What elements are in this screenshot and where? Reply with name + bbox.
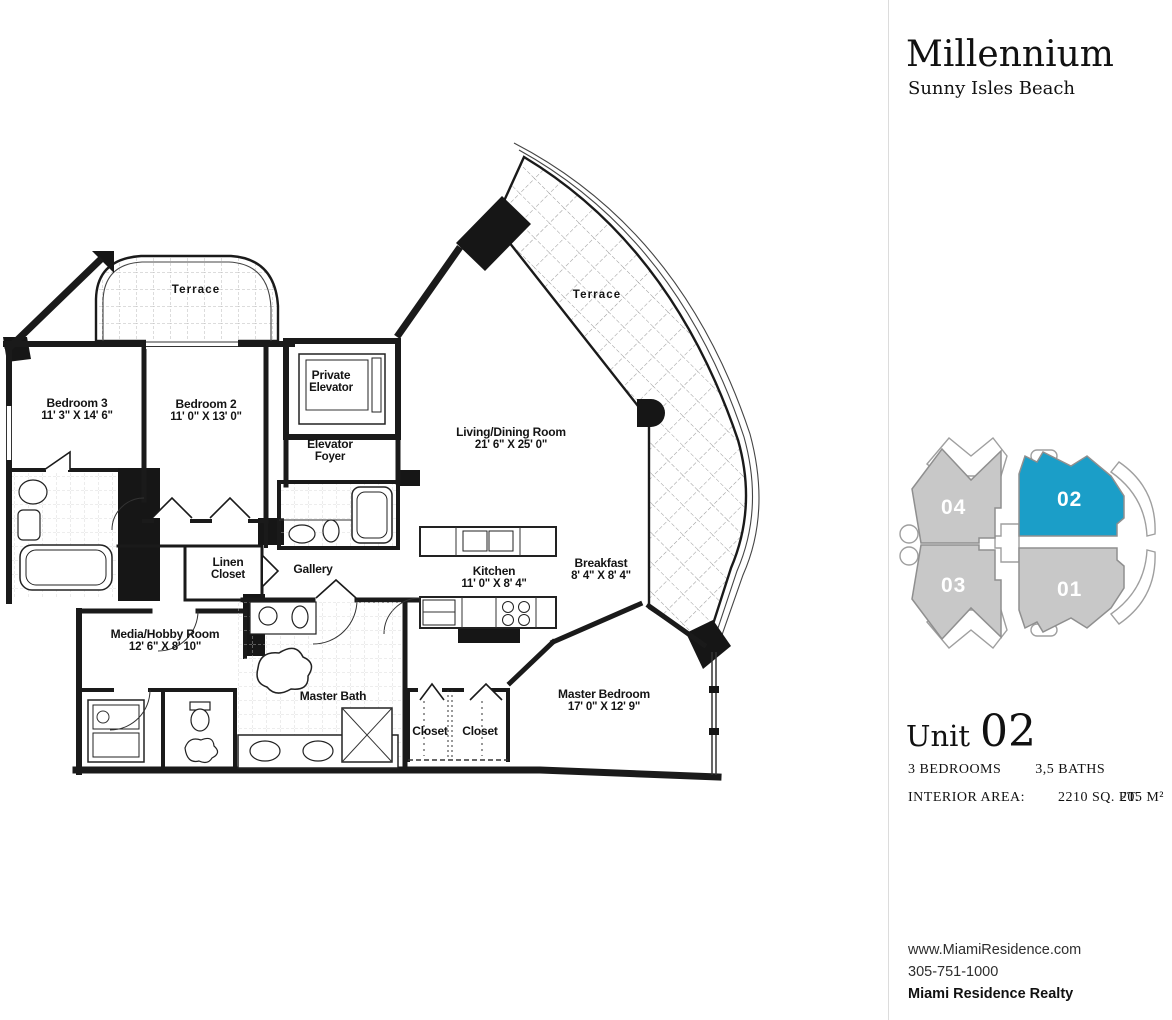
room-label-kitchen: Kitchen11' 0" X 8' 4" (461, 564, 526, 592)
unit-title: Unit 02 (906, 706, 1036, 757)
unit-word: Unit (906, 719, 970, 753)
room-label-master-bath: Master Bath (300, 689, 366, 703)
laundry-shape (88, 690, 150, 762)
keyplan-label-02: 02 (1057, 488, 1082, 511)
building-location: Sunny Isles Beach (908, 78, 1114, 100)
info-panel: Millennium Sunny Isles Beach 04 (888, 0, 1172, 1020)
keyplan-label-03: 03 (941, 574, 966, 597)
terrace-north-shape (96, 256, 278, 341)
keyplan: 04 02 03 01 (897, 436, 1167, 658)
bedrooms-value: 3 BEDROOMS (908, 762, 1001, 777)
room-label-elevator-foyer: ElevatorFoyer (307, 437, 353, 465)
unit-number: 02 (980, 706, 1036, 757)
hall-bath-shape (279, 482, 398, 548)
room-label-master-bedroom: Master Bedroom17' 0" X 12' 9" (558, 687, 650, 715)
bath-2-shape (12, 452, 116, 598)
baths-value: 3,5 BATHS (1035, 762, 1105, 777)
room-label-breakfast: Breakfast8' 4" X 8' 4" (571, 556, 631, 584)
room-label-bedroom-3: Bedroom 311' 3" X 14' 6" (41, 396, 113, 424)
unit-specs: 3 BEDROOMS 3,5 BATHS INTERIOR AREA: 2210… (908, 763, 1164, 807)
floorplan-drawing (0, 0, 890, 1020)
keyplan-label-01: 01 (1057, 578, 1082, 601)
powder-room-shape (185, 702, 218, 762)
area-label: INTERIOR AREA: (908, 790, 1025, 805)
area-m2: 205 M² (1120, 791, 1164, 805)
room-label-closet-right: Closet (462, 724, 497, 738)
flyer-page: TerraceTerraceBedroom 311' 3" X 14' 6"Be… (0, 0, 1172, 1020)
area-row: INTERIOR AREA: 2210 SQ. FT. 205 M² (908, 791, 1164, 807)
room-label-living-dining: Living/Dining Room21' 6" X 25' 0" (456, 425, 566, 453)
room-label-terrace-east: Terrace (573, 289, 621, 303)
floorplan: TerraceTerraceBedroom 311' 3" X 14' 6"Be… (0, 0, 890, 1020)
room-label-gallery: Gallery (293, 562, 332, 576)
phone: 305-751-1000 (908, 962, 1081, 984)
room-label-terrace-north: Terrace (172, 284, 220, 298)
brand-block: Millennium Sunny Isles Beach (906, 36, 1114, 99)
room-label-closet-left: Closet (412, 724, 447, 738)
contact-block: www.MiamiResidence.com 305-751-1000 Miam… (908, 940, 1081, 1005)
keyplan-label-04: 04 (941, 496, 966, 519)
room-label-linen-closet: LinenCloset (211, 555, 245, 583)
company-name: Miami Residence Realty (908, 984, 1081, 1006)
room-label-media-hobby: Media/Hobby Room12' 6" X 8' 10" (111, 627, 220, 655)
website: www.MiamiResidence.com (908, 940, 1081, 962)
room-label-bedroom-2: Bedroom 211' 0" X 13' 0" (170, 397, 242, 425)
master-bath-shape (238, 600, 402, 768)
bed-bath-row: 3 BEDROOMS 3,5 BATHS (908, 763, 1164, 777)
room-label-private-elevator: PrivateElevator (309, 368, 353, 396)
building-name: Millennium (906, 36, 1114, 74)
